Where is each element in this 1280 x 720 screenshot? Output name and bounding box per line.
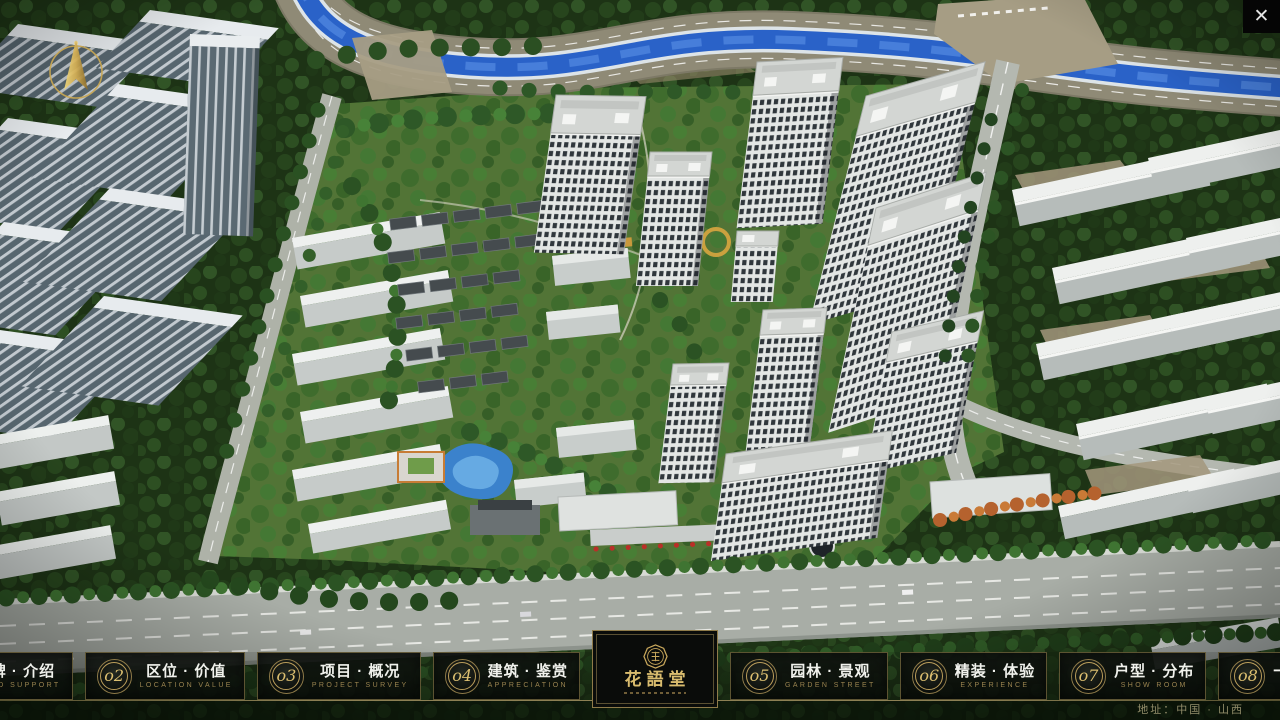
close-button[interactable]: ✕ <box>1243 0 1280 33</box>
nav-badge-03: o3 <box>269 659 304 694</box>
nav-number: o2 <box>104 668 124 685</box>
nav-title: 项目 · 概况 <box>320 664 400 679</box>
nav-item-location[interactable]: o2 区位 · 价值LOCATION VALUE <box>85 652 245 700</box>
nav-title: 区位 · 价值 <box>146 664 226 679</box>
nav-item-floorplans[interactable]: o7 户型 · 分布SHOW ROOM <box>1059 652 1206 700</box>
nav-number: o7 <box>1079 668 1099 685</box>
nav-row: o1 品牌 · 介绍BRAND SUPPORT o2 区位 · 价值LOCATI… <box>0 652 1280 700</box>
address-text: 地址：中国 · 山西 <box>1137 701 1244 717</box>
close-icon: ✕ <box>1254 7 1270 26</box>
seal-emblem-icon <box>643 644 668 669</box>
nav-subtitle: PROJECT SURVEY <box>312 682 409 689</box>
nav-item-brand[interactable]: o1 品牌 · 介绍BRAND SUPPORT <box>0 652 73 700</box>
nav-badge-02: o2 <box>97 659 132 694</box>
nav-badge-06: o6 <box>912 659 947 694</box>
nav-badge-08: o8 <box>1230 659 1265 694</box>
nav-subtitle: LOCATION VALUE <box>140 682 233 689</box>
nav-number: o4 <box>452 668 472 685</box>
nav-number: o6 <box>919 668 939 685</box>
nav-title: 户型 · 分布 <box>1114 664 1194 679</box>
nav-item-garden[interactable]: o5 园林 · 景观GARDEN STREET <box>730 652 888 700</box>
nav-badge-04: o4 <box>445 659 480 694</box>
nav-item-views[interactable]: o8 一房 · 一景COMMUNITY <box>1218 652 1280 700</box>
project-logo-text: 花語堂 <box>620 672 691 689</box>
logo-panel[interactable]: 花語堂 <box>592 630 718 708</box>
logo-tagline-dots <box>624 692 686 694</box>
nav-title: 一房 · 一景 <box>1273 664 1280 679</box>
nav-badge-05: o5 <box>742 659 777 694</box>
nav-item-project[interactable]: o3 项目 · 概况PROJECT SURVEY <box>257 652 421 700</box>
nav-title: 建筑 · 鉴赏 <box>488 664 568 679</box>
nav-subtitle: SHOW ROOM <box>1121 682 1188 689</box>
nav-number: o3 <box>276 668 296 685</box>
nav-badge-07: o7 <box>1071 659 1106 694</box>
nav-number: o8 <box>1238 668 1258 685</box>
bottom-nav-bar: o1 品牌 · 介绍BRAND SUPPORT o2 区位 · 价值LOCATI… <box>0 652 1280 720</box>
nav-subtitle: EXPERIENCE <box>960 682 1029 689</box>
nav-number: o5 <box>750 668 770 685</box>
presentation-window: ✕ o1 品牌 · 介绍BRAND SUPPORT o2 区位 · 价值LOCA… <box>0 0 1280 720</box>
vignette <box>0 0 1280 720</box>
nav-item-architecture[interactable]: o4 建筑 · 鉴赏APPRECIATION <box>433 652 580 700</box>
nav-title: 品牌 · 介绍 <box>0 664 55 679</box>
nav-subtitle: GARDEN STREET <box>785 682 876 689</box>
nav-subtitle: BRAND SUPPORT <box>0 682 61 689</box>
masterplan-3d-render[interactable] <box>0 0 1280 720</box>
compass-north-icon[interactable] <box>42 32 110 106</box>
nav-subtitle: APPRECIATION <box>488 682 568 689</box>
nav-title: 精装 · 体验 <box>955 664 1035 679</box>
nav-title: 园林 · 景观 <box>790 664 870 679</box>
nav-item-interior[interactable]: o6 精装 · 体验EXPERIENCE <box>900 652 1047 700</box>
